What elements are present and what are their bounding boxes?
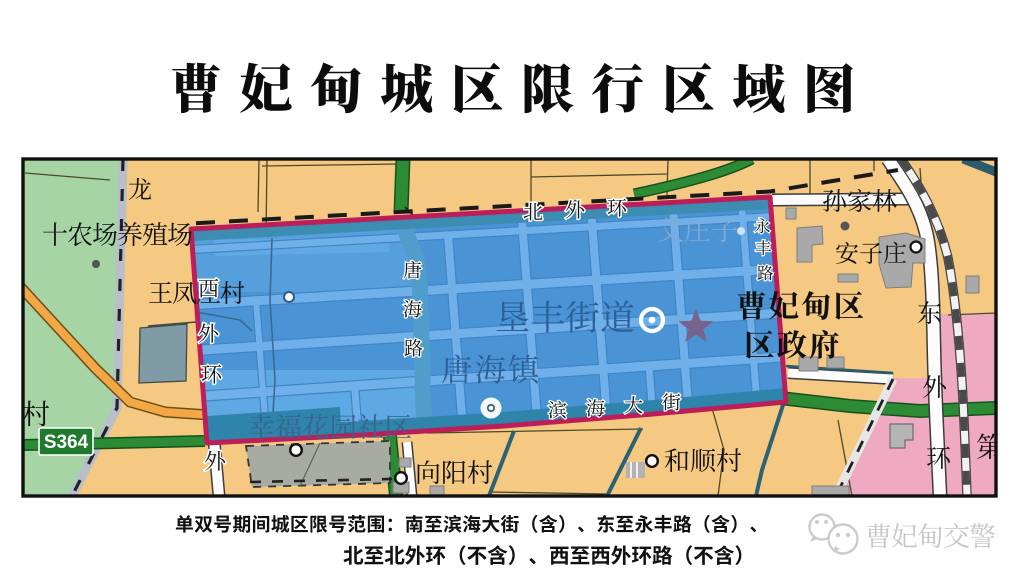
svg-text:S364: S364 [44, 432, 89, 453]
